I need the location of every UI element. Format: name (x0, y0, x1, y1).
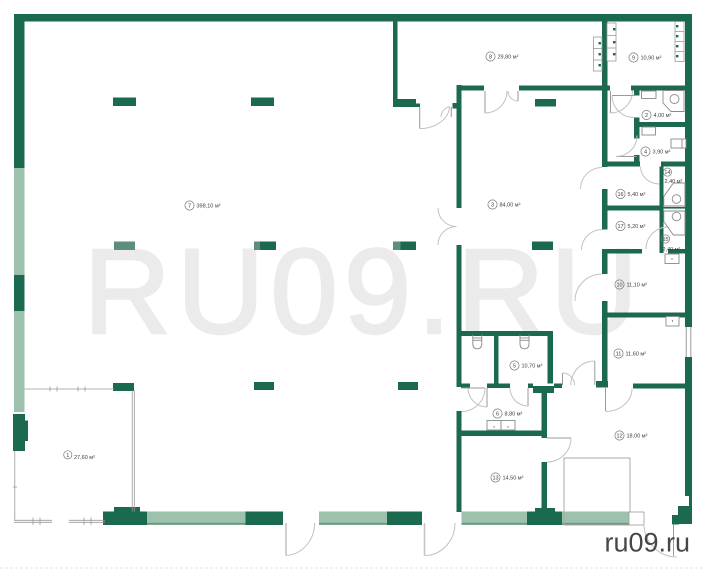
svg-text:84,00 м²: 84,00 м² (500, 203, 521, 209)
svg-text:17: 17 (617, 224, 623, 230)
svg-text:11: 11 (616, 352, 622, 358)
svg-text:2,40 м²: 2,40 м² (665, 179, 683, 185)
svg-text:7: 7 (188, 204, 191, 210)
svg-text:29,80 м²: 29,80 м² (498, 55, 519, 61)
svg-text:5,20 м²: 5,20 м² (628, 224, 646, 230)
svg-text:1: 1 (66, 453, 69, 459)
svg-text:3: 3 (491, 203, 494, 209)
svg-text:4,00 м²: 4,00 м² (654, 113, 672, 119)
svg-text:8: 8 (489, 55, 492, 61)
svg-text:5,40 м²: 5,40 м² (628, 192, 646, 198)
svg-text:11,10 м²: 11,10 м² (627, 283, 648, 289)
svg-text:8,80 м²: 8,80 м² (505, 412, 523, 418)
svg-text:14,50 м²: 14,50 м² (503, 476, 524, 482)
svg-text:4: 4 (644, 150, 647, 156)
svg-text:11,60 м²: 11,60 м² (626, 352, 647, 358)
svg-text:9: 9 (632, 56, 635, 62)
svg-text:2,40 м²: 2,40 м² (663, 247, 681, 253)
svg-text:18,00 м²: 18,00 м² (627, 434, 648, 440)
svg-text:13: 13 (492, 476, 498, 482)
svg-text:ru09.ru: ru09.ru (605, 528, 691, 558)
svg-text:27,60 м²: 27,60 м² (74, 455, 95, 461)
svg-text:14: 14 (664, 170, 670, 176)
svg-text:2: 2 (645, 113, 648, 119)
svg-text:16: 16 (617, 192, 623, 198)
svg-text:6: 6 (496, 412, 499, 418)
svg-text:RU09.RU: RU09.RU (84, 223, 644, 359)
svg-text:10,90 м²: 10,90 м² (641, 56, 662, 62)
svg-text:12: 12 (616, 434, 622, 440)
svg-text:398,10 м²: 398,10 м² (197, 204, 221, 210)
svg-text:5: 5 (513, 364, 516, 370)
svg-text:3,90 м²: 3,90 м² (653, 150, 671, 156)
svg-text:10,70 м²: 10,70 м² (522, 364, 543, 370)
svg-text:10: 10 (616, 283, 622, 289)
svg-text:15: 15 (662, 237, 668, 243)
